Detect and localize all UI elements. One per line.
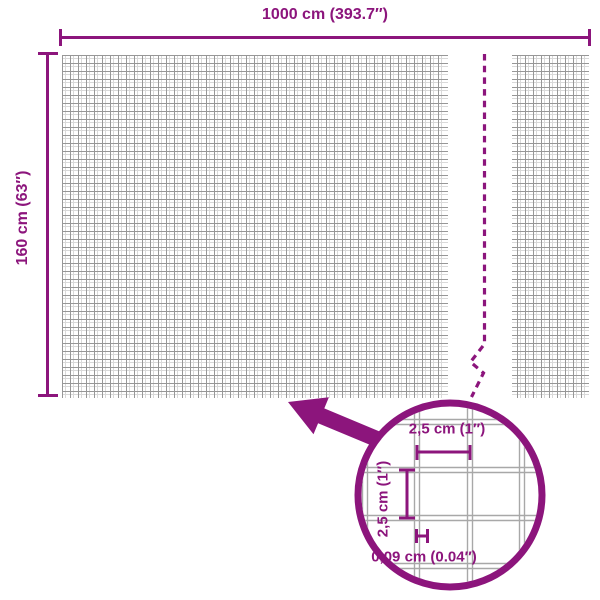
height-dimension-line <box>38 54 58 396</box>
detail-cell-height-label: 2,5 cm (1″) <box>375 461 392 537</box>
diagram-graphics <box>0 0 600 600</box>
detail-cell-width-label: 2,5 cm (1″) <box>409 421 485 438</box>
dimension-diagram: 1000 cm (393.7″) 160 cm (63″) 2,5 cm (1″… <box>0 0 600 600</box>
width-dimension-line <box>61 29 590 46</box>
height-dimension-label: 160 cm (63″) <box>14 171 32 266</box>
break-line <box>471 54 485 397</box>
width-dimension-label: 1000 cm (393.7″) <box>262 6 388 24</box>
detail-wire-thickness-label: 0,09 cm (0.04″) <box>371 549 477 566</box>
